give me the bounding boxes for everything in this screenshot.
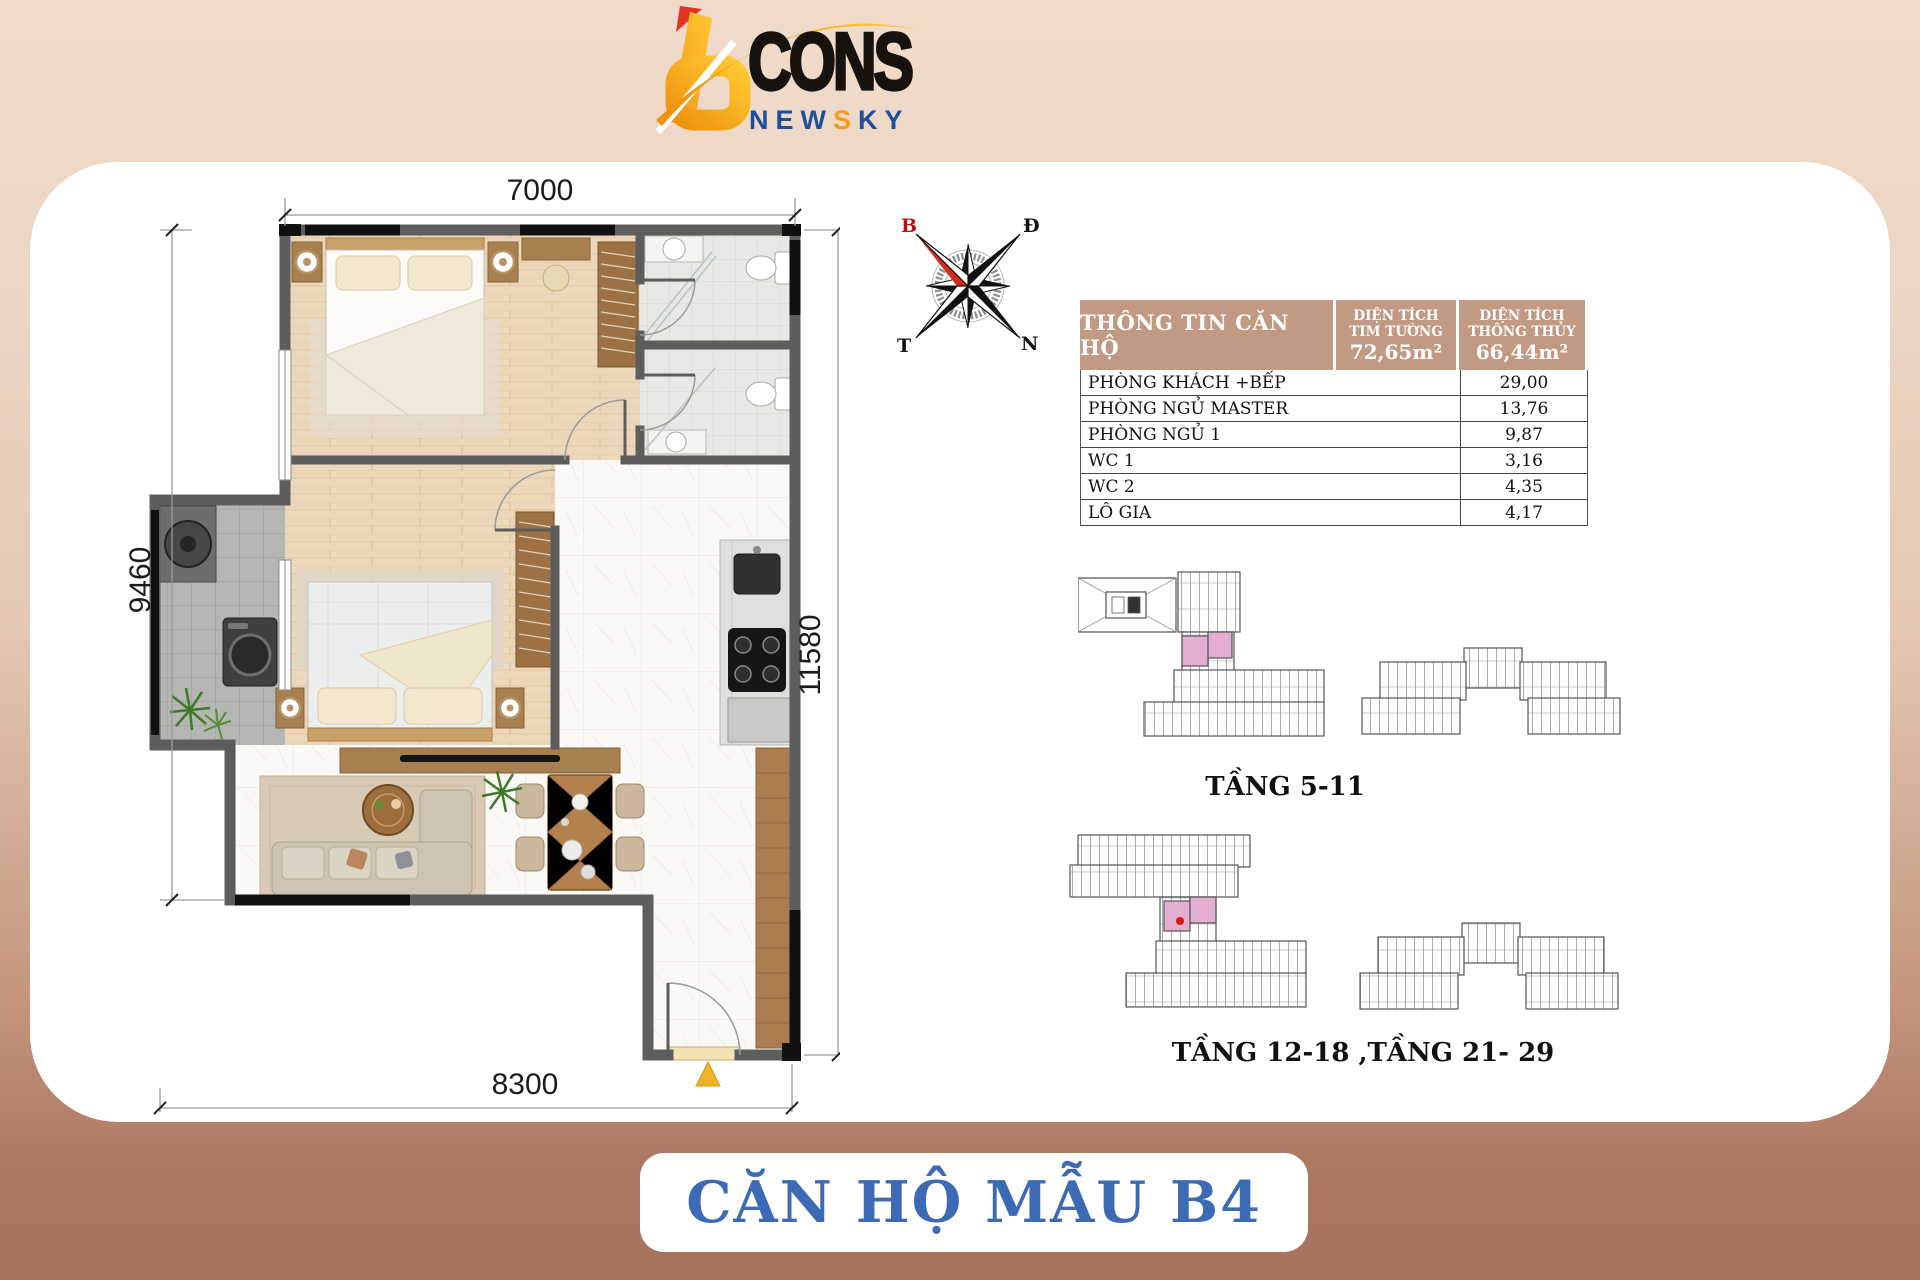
highlighted-unit-b4-2	[1164, 901, 1190, 931]
table-row: PHÒNG KHÁCH +BẾP29,00	[1081, 370, 1587, 396]
apartment-floor-plan: 7000 9460 11580 8300	[120, 150, 840, 1115]
table-row: WC 24,35	[1081, 474, 1587, 500]
building-block-b2	[1360, 923, 1618, 1009]
kitchen-counter	[720, 540, 795, 745]
col-tim-tuong-header: DIỆN TÍCH TIM TƯỜNG 72,65m²	[1336, 300, 1459, 370]
washing-machine	[223, 618, 277, 686]
dim-bottom-label: 8300	[492, 1068, 559, 1101]
cooktop	[728, 628, 786, 692]
tv	[400, 755, 560, 762]
entry-cabinet	[756, 748, 792, 1048]
apartment-info-table: THÔNG TIN CĂN HỘ DIỆN TÍCH TIM TƯỜNG 72,…	[1080, 300, 1588, 526]
living-room-furniture	[260, 776, 485, 896]
compass-rose-icon: B Đ T N	[885, 210, 1045, 355]
brochure-page: { "logo": { "cons": "CONS", "newsky_pre"…	[0, 0, 1920, 1280]
compass-label-b: B	[901, 215, 917, 237]
logo-cons-text: CONS	[748, 22, 911, 103]
table-row: WC 13,16	[1081, 448, 1587, 474]
site-plan-1-label: TẦNG 5-11	[1205, 767, 1365, 802]
info-table-header: THÔNG TIN CĂN HỘ DIỆN TÍCH TIM TƯỜNG 72,…	[1080, 300, 1588, 370]
table-row: LÔ GIA4,17	[1081, 500, 1587, 526]
logo-newsky-text: NEWSKY	[749, 105, 910, 136]
table-row: PHÒNG NGỦ 19,87	[1081, 422, 1587, 448]
col-thong-thuy-header: DIỆN TÍCH THÔNG THỦY 66,44m²	[1459, 300, 1585, 370]
site-plan-2-drawing: TẦNG 12-18 ,TẦNG 21- 29	[1068, 833, 1633, 1073]
bedroom2-wardrobe	[516, 512, 554, 667]
dim-right-label: 11580	[794, 614, 827, 695]
tim-tuong-area-value: 72,65m²	[1350, 341, 1443, 363]
site-plan-2-label: TẦNG 12-18 ,TẦNG 21- 29	[1172, 1033, 1555, 1068]
compass-label-t: T	[897, 335, 911, 355]
info-table-body: PHÒNG KHÁCH +BẾP29,00 PHÒNG NGỦ MASTER13…	[1080, 370, 1588, 526]
dim-left-label: 9460	[124, 547, 157, 614]
building-block-a2	[1070, 835, 1306, 1007]
entrance-marker-triangle	[696, 1062, 720, 1086]
building-block-b	[1362, 648, 1620, 734]
bcons-newsky-logo: CONS NEWSKY	[652, 4, 932, 142]
unit-name-text: CĂN HỘ MẪU B4	[686, 1169, 1262, 1236]
site-plan-floors-12-29: TẦNG 12-18 ,TẦNG 21- 29	[1068, 833, 1633, 1073]
master-wardrobe	[598, 242, 638, 367]
dim-top-label: 7000	[507, 174, 574, 207]
thong-thuy-area-value: 66,44m²	[1476, 341, 1569, 363]
unit-location-dot	[1176, 917, 1184, 925]
compass-label-n: N	[1021, 333, 1038, 355]
info-table-title: THÔNG TIN CĂN HỘ	[1080, 300, 1336, 370]
site-plan-floors-5-11: TẦNG 5-11	[1078, 570, 1623, 808]
compass-label-d: Đ	[1023, 215, 1040, 237]
coffee-table	[363, 785, 413, 835]
unit-name-banner: CĂN HỘ MẪU B4	[640, 1153, 1308, 1252]
table-row: PHÒNG NGỦ MASTER13,76	[1081, 396, 1587, 422]
entrance-doorsill	[668, 1047, 740, 1060]
tv-console	[340, 748, 620, 773]
site-plan-1-drawing: TẦNG 5-11	[1078, 570, 1623, 808]
kitchen-sink	[734, 554, 780, 594]
fridge	[728, 698, 790, 742]
highlighted-unit-b4	[1182, 636, 1208, 666]
building-block-a	[1078, 572, 1324, 736]
